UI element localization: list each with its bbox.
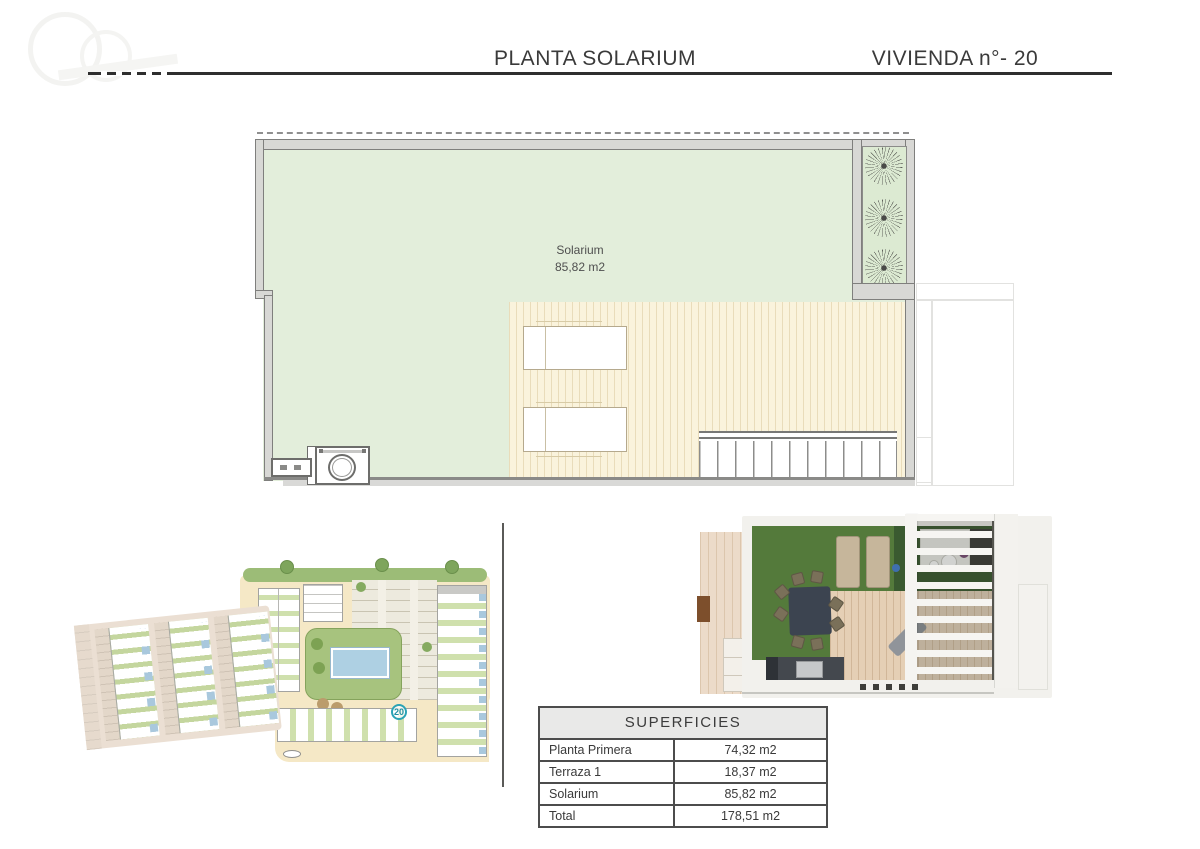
left-wall-upper (255, 139, 264, 294)
sun-lounger (523, 407, 627, 452)
table-title: SUPERFICIES (540, 708, 826, 738)
planter-wall (852, 139, 862, 291)
render-right-wall (994, 514, 1018, 688)
render-chair (810, 570, 824, 584)
parking-lane (410, 580, 418, 700)
table-row: Planta Primera 74,32 m2 (540, 738, 826, 760)
table-row: Solarium 85,82 m2 (540, 782, 826, 804)
site-tree-icon (356, 582, 366, 592)
site-pool (331, 648, 389, 678)
lounger-shadow-line (536, 402, 602, 403)
washing-machine-door-inner (332, 458, 352, 477)
row-label: Solarium (540, 784, 675, 804)
site-road-marking (283, 750, 301, 758)
plant-icon (865, 199, 903, 237)
render-chair (810, 637, 824, 651)
utility-box (271, 458, 312, 477)
site-tree-icon (445, 560, 459, 574)
floor-plan: Solarium 85,82 m2 (0, 0, 1200, 500)
wing-block (154, 618, 219, 735)
stairs-handrail (699, 437, 897, 439)
row-label: Planta Primera (540, 740, 675, 760)
render-blue-item (892, 564, 900, 572)
bbq-side (766, 657, 778, 682)
stairs (699, 431, 897, 479)
left-wall-lower (264, 295, 273, 481)
wing-block (94, 624, 159, 741)
pergola-slats (917, 514, 994, 686)
lounger-pillow-line (545, 327, 546, 369)
render-lounger (836, 536, 860, 588)
site-tree-icon (280, 560, 294, 574)
render-step-wall (1018, 584, 1048, 690)
unit-20-badge: 20 (391, 704, 407, 720)
surfaces-table: SUPERFICIES Planta Primera 74,32 m2 Terr… (538, 706, 828, 828)
row-label: Total (540, 806, 675, 826)
lounger-pillow-line (545, 408, 546, 451)
lounger-shadow-line (536, 321, 602, 322)
washing-machine-knob (319, 449, 323, 453)
render-appliances (723, 638, 744, 692)
row-value: 74,32 m2 (675, 740, 826, 760)
bbq-grill (796, 661, 823, 678)
planter-base-wall (852, 283, 915, 300)
units-center-line (278, 589, 279, 691)
room-name: Solarium (495, 242, 665, 259)
appliance-line (724, 675, 743, 676)
utility-mark (294, 465, 301, 470)
site-tree-icon (422, 642, 432, 652)
site-bush-icon (311, 638, 323, 650)
bottom-wall-shadow (283, 480, 915, 486)
site-bush-icon (313, 662, 325, 674)
solarium-label: Solarium 85,82 m2 (495, 242, 665, 276)
render-bbq (766, 657, 844, 682)
divider-line (502, 523, 504, 787)
site-left-wing (74, 605, 282, 750)
table-row: Total 178,51 m2 (540, 804, 826, 826)
room-area: 85,82 m2 (495, 259, 665, 276)
site-plan: 20 (75, 550, 495, 800)
plant-icon (865, 249, 903, 287)
units-pool-strip (479, 594, 486, 754)
bottom-wall-window-dashes (860, 684, 922, 690)
pergola-beam (905, 514, 917, 686)
site-units-column-right (437, 585, 487, 757)
stairs-treads (699, 441, 897, 481)
render-3d (695, 510, 1055, 702)
render-lounger (866, 536, 890, 588)
lounger-shadow-line (536, 456, 602, 457)
utility-mark (280, 465, 287, 470)
wing-block (214, 611, 279, 728)
washing-machine-knob (362, 449, 366, 453)
render-frame (742, 516, 1052, 698)
table-row: Terraza 1 18,37 m2 (540, 760, 826, 782)
render-dining-table (788, 586, 832, 635)
appliance-line (724, 657, 743, 658)
render-door (697, 596, 710, 622)
adjacent-unit-notch (916, 437, 932, 483)
plan-sheet: PLANTA SOLARIUM VIVIENDA n°- 20 Solarium… (0, 0, 1200, 849)
washing-machine-door (328, 454, 356, 481)
row-value: 178,51 m2 (675, 806, 826, 826)
adjacent-unit-line (916, 299, 1014, 301)
units-top-band (438, 586, 486, 594)
plant-icon (865, 147, 903, 185)
dashed-parapet-line (257, 132, 909, 134)
render-bottom-wall (742, 680, 994, 694)
washing-machine-top-strip (319, 450, 366, 453)
row-value: 85,82 m2 (675, 784, 826, 804)
site-units-block-top (303, 584, 343, 622)
row-label: Terraza 1 (540, 762, 675, 782)
top-wall (255, 139, 914, 150)
sun-lounger (523, 326, 627, 370)
washing-machine (315, 446, 370, 485)
row-value: 18,37 m2 (675, 762, 826, 782)
site-tree-icon (375, 558, 389, 572)
